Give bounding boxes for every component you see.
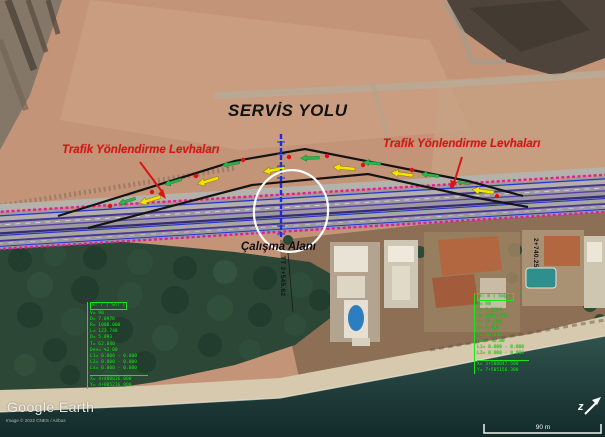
left-sign-label: Trafik Yönlendirme Levhaları [62, 144, 219, 156]
curve-footer: X= 4+480836.000 Y= 4+085236.000 [90, 375, 148, 389]
scale-bar-label: 90 m [498, 424, 588, 431]
villa-white-3 [584, 236, 605, 308]
servis-yolu-title: SERVİS YOLU [228, 101, 348, 121]
imagery-attribution: Image © 2022 CNES / Airbus [6, 418, 66, 423]
curve-coord-y: Y= 4+085236.000 [90, 383, 148, 389]
villa-white-1 [330, 242, 380, 346]
google-earth-watermark: Google Earth [7, 399, 94, 415]
curve-row: L2= 0.000 - 0.000 [477, 351, 529, 357]
curve-row: Ls= 0.000 - 0.000 [90, 366, 148, 372]
work-area-label: Çalışma Alanı [241, 241, 316, 253]
curve-table-left: S: 7 ( Sol ) V= 90 D= 7.0976 R= 1000.000… [87, 302, 148, 389]
swimming-pool [526, 268, 556, 288]
curve-coord-y: Y= 7+505156.300 [477, 368, 529, 374]
curve-table-right: S: 8 ( Sağ ) V= 90 D= 5.0956 R= 1000.000… [474, 293, 529, 374]
curve-table-right-header: S: 8 ( Sağ ) [477, 293, 514, 301]
curve-footer: X= 3+500047.500 Y= 7+505156.300 [477, 360, 529, 374]
north-arrow-glyph[interactable]: z [578, 401, 584, 413]
right-sign-label: Trafik Yönlendirme Levhaları [383, 138, 540, 150]
swimming-pool [348, 305, 364, 331]
station-label-right: 2+740.25 [532, 238, 539, 268]
station-label-center: TT 2+545.62 [279, 256, 286, 296]
villa-white-2 [384, 240, 418, 308]
curve-table-left-header: S: 7 ( Sol ) [90, 302, 127, 310]
field-light-patch-right [430, 70, 605, 185]
google-earth-viewport[interactable]: SERVİS YOLU Trafik Yönlendirme Levhaları… [0, 0, 605, 437]
curve-row: L1= 0.000 - 0.000 [477, 345, 529, 351]
